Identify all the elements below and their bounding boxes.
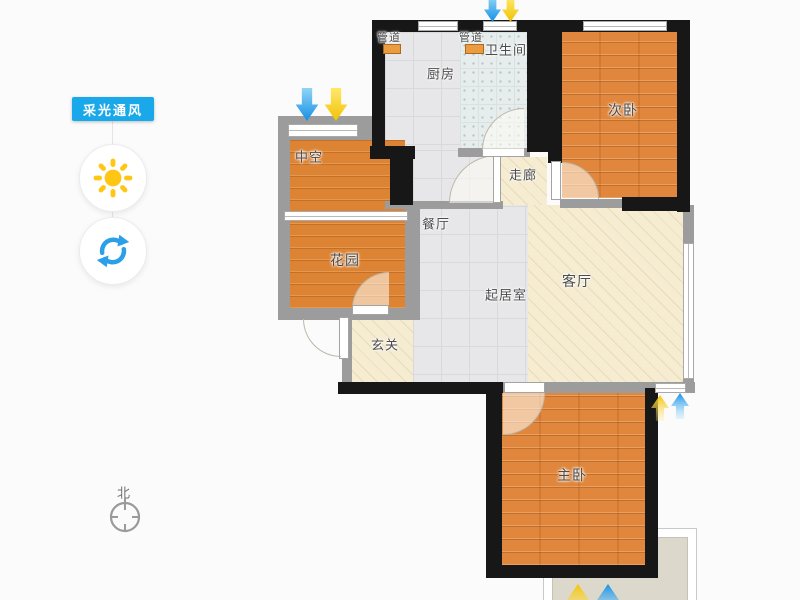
wall: [405, 205, 420, 320]
room-label-garden: 花园: [330, 250, 360, 270]
window: [583, 21, 667, 31]
room-label-corridor: 走廊: [509, 165, 537, 184]
wall: [677, 20, 690, 212]
window: [284, 211, 408, 221]
light-arrow-up-icon: [651, 395, 669, 421]
wall: [486, 382, 502, 578]
room-label-kitchen: 厨房: [427, 64, 455, 83]
wall: [390, 148, 413, 205]
room-label-living: 客厅: [562, 271, 592, 291]
wall: [486, 565, 658, 578]
room-label-foyer: 玄关: [371, 335, 399, 354]
wall: [560, 199, 622, 208]
door-kitchen: [493, 155, 501, 203]
compass-icon: [106, 498, 144, 536]
door-bedroom2: [551, 161, 561, 200]
wall: [338, 382, 503, 394]
wind-arrow-up-icon: [595, 584, 621, 600]
light-arrow-down-icon: [502, 0, 519, 22]
room-living-floor: [528, 205, 683, 382]
wall: [622, 197, 690, 211]
door-garden: [352, 305, 389, 315]
wall: [527, 20, 562, 152]
duct-symbol: [465, 44, 484, 54]
window: [655, 383, 686, 393]
lighting-ventilation-button[interactable]: 采光通风: [72, 97, 154, 121]
wind-arrow-up-icon: [671, 393, 689, 419]
door-master: [504, 382, 545, 393]
light-arrow-up-icon: [565, 584, 591, 600]
room-label-bathroom: 卫生间: [485, 40, 527, 59]
window: [483, 21, 517, 31]
wind-arrow-down-icon: [295, 88, 319, 121]
window: [418, 21, 458, 31]
sun-button[interactable]: [79, 144, 147, 212]
duct-symbol: [383, 44, 401, 54]
refresh-icon: [95, 233, 131, 269]
window: [683, 243, 694, 379]
room-label-bedroom2: 次卧: [608, 100, 638, 120]
light-arrow-down-icon: [324, 88, 348, 121]
room-label-duct1: 管道: [377, 29, 401, 45]
sun-icon: [92, 157, 134, 199]
room-label-duct2: 管道: [459, 29, 483, 45]
room-label-dining: 餐厅: [422, 214, 450, 233]
room-label-family: 起居室: [485, 285, 527, 304]
window: [288, 124, 358, 137]
door-arc-entry: [303, 319, 341, 357]
room-label-master: 主卧: [557, 465, 587, 485]
room-label-void: 中空: [295, 147, 323, 166]
floorplan-canvas: 管道 管道 厨房 卫生间 次卧 中空 走廊 餐厅 花园 客厅 起居室 玄关 主卧…: [0, 0, 800, 600]
rotate-button[interactable]: [79, 217, 147, 285]
wind-arrow-down-icon: [484, 0, 501, 22]
